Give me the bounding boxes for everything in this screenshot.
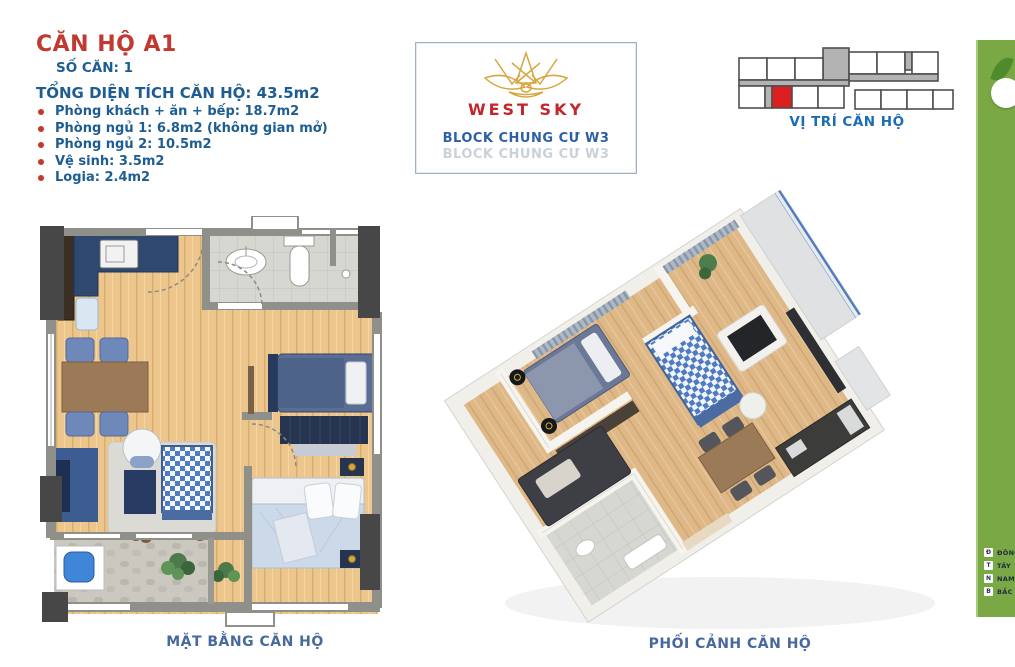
compass-west-icon: T [984, 561, 993, 570]
dining-table [62, 362, 148, 412]
dining-chair [100, 338, 128, 362]
compass-south-icon: N [984, 574, 993, 583]
bullet-icon [38, 142, 44, 148]
compass-row: T TÂY [984, 561, 1015, 570]
floorplate-diagram [733, 44, 958, 110]
green-sidebar: Đ ĐÔNG T TÂY N NAM B BẮC [976, 40, 1015, 617]
bullet-icon [38, 175, 44, 181]
page-title: CĂN HỘ A1 [36, 32, 406, 57]
dining-chair [100, 412, 128, 436]
toilet [284, 236, 314, 246]
console-cabinet [76, 298, 98, 330]
compass-north-icon: B [984, 587, 993, 596]
location-caption: VỊ TRÍ CĂN HỘ [733, 114, 961, 130]
perspective-3d [430, 188, 935, 640]
floor-plan-2d [40, 216, 390, 628]
wardrobe-divider [280, 416, 368, 444]
logo-badge [991, 78, 1015, 108]
room-area-list: Phòng khách + ăn + bếp: 18.7m2 Phòng ngủ… [36, 104, 406, 187]
list-item: Logia: 2.4m2 [36, 170, 406, 187]
perspective-caption: PHỐI CẢNH CĂN HỘ [555, 636, 905, 652]
apartment-info: CĂN HỘ A1 SỐ CĂN: 1 TỔNG DIỆN TÍCH CĂN H… [36, 32, 406, 187]
project-logo-card: WEST SKY BLOCK CHUNG CƯ W3 BLOCK CHUNG C… [415, 42, 637, 174]
block-label: BLOCK CHUNG CƯ W3 [416, 131, 636, 146]
unit-number: SỐ CĂN: 1 [56, 60, 406, 76]
compass-row: B BẮC [984, 587, 1015, 596]
compass-east-icon: Đ [984, 548, 993, 557]
lotus-icon [416, 50, 636, 102]
shower-drain [342, 270, 350, 278]
bullet-icon [38, 126, 44, 132]
highlighted-unit [772, 86, 792, 108]
list-item: Phòng ngủ 2: 10.5m2 [36, 137, 406, 154]
unit-location: VỊ TRÍ CĂN HỘ [733, 44, 961, 130]
dining-chair [66, 412, 94, 436]
block-label-reflection: BLOCK CHUNG CƯ W3 [416, 147, 636, 162]
bed2-pillow [304, 482, 334, 519]
compass-legend: Đ ĐÔNG T TÂY N NAM B BẮC [984, 548, 1015, 600]
compass-row: N NAM [984, 574, 1015, 583]
daybed-sofa [162, 446, 212, 512]
bullet-icon [38, 159, 44, 165]
list-item: Vệ sinh: 3.5m2 [36, 154, 406, 171]
list-item: Phòng khách + ăn + bếp: 18.7m2 [36, 104, 406, 121]
compass-row: Đ ĐÔNG [984, 548, 1015, 557]
bed2-pillow [332, 483, 361, 520]
apartment-model [444, 188, 921, 622]
bullet-icon [38, 109, 44, 115]
list-item: Phòng ngủ 1: 6.8m2 (không gian mở) [36, 121, 406, 138]
dining-chair [66, 338, 94, 362]
brochure-page: CĂN HỘ A1 SỐ CĂN: 1 TỔNG DIỆN TÍCH CĂN H… [0, 0, 1015, 667]
bed1-pillow [346, 362, 366, 404]
bed1-headboard [268, 354, 278, 412]
floor-plan-caption: MẶT BẰNG CĂN HỘ [70, 634, 420, 650]
total-area: TỔNG DIỆN TÍCH CĂN HỘ: 43.5m2 [36, 84, 406, 102]
brand-name: WEST SKY [416, 100, 636, 119]
coffee-table [124, 470, 156, 514]
